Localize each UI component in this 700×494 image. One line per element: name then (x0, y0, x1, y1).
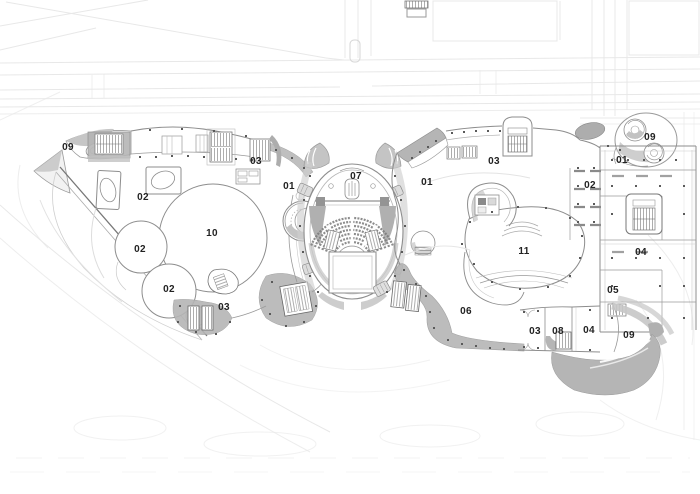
floor-plan-page: 0902030110020203070103110603080409050402… (0, 0, 700, 494)
floor-plan-canvas (0, 0, 700, 494)
